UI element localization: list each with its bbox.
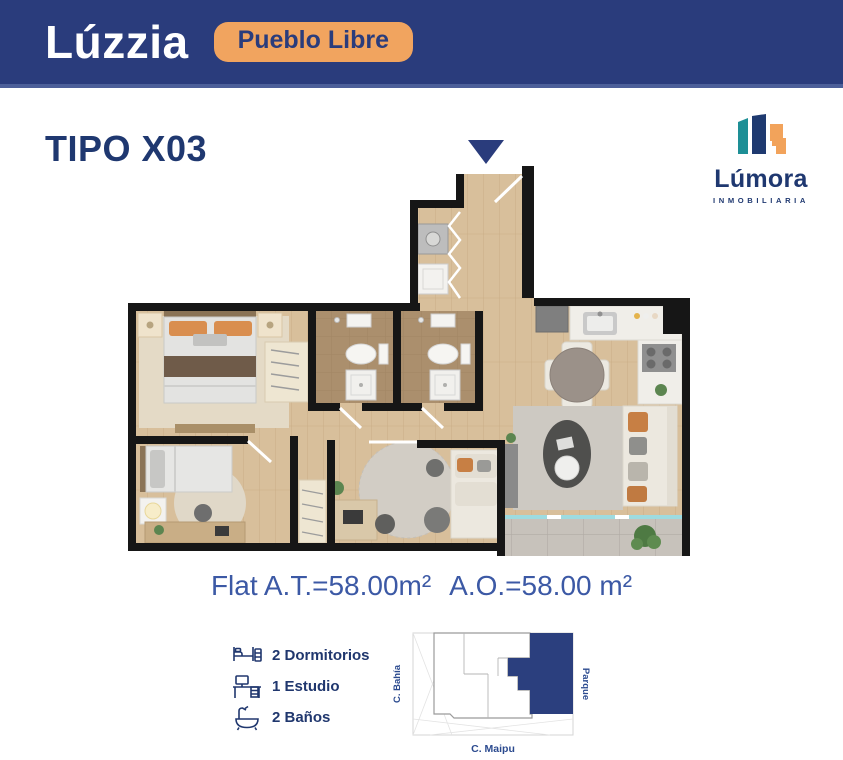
brand-title: Lúzzia: [45, 15, 189, 69]
feature-label: 2 Dormitorios: [272, 647, 370, 664]
park-label: Parque: [580, 668, 590, 700]
header-bar: Lúzzia Pueblo Libre: [0, 0, 843, 88]
glass-wall: [505, 515, 682, 519]
tv-console: [505, 444, 518, 508]
floor-plan: [115, 138, 695, 566]
desk-icon: [230, 674, 264, 700]
feature-item-bedrooms: 2 Dormitorios: [230, 640, 370, 671]
fridge: [536, 306, 568, 332]
living-room: [505, 406, 677, 510]
feature-list: 2 Dormitorios 1 Estudio 2 Baños: [230, 640, 370, 733]
entrance-arrow: [468, 140, 504, 164]
developer-subtitle: INMOBILIARIA: [702, 196, 820, 205]
buildings-icon: [724, 112, 798, 158]
official-area-text: A.O.=58.00 m²: [449, 570, 632, 602]
site-map: C. Bahía Parque C. Maipu: [390, 624, 590, 756]
feature-label: 2 Baños: [272, 709, 330, 726]
dining-table: [550, 348, 604, 402]
total-area-text: Flat A.T.=58.00m²: [211, 570, 431, 602]
feature-item-study: 1 Estudio: [230, 671, 370, 702]
cooktop: [642, 344, 676, 372]
feature-item-bathrooms: 2 Baños: [230, 702, 370, 733]
developer-logo: Lúmora INMOBILIARIA: [702, 112, 820, 205]
bed-icon: [230, 643, 264, 669]
street-label-left: C. Bahía: [392, 664, 403, 703]
master-bedroom: [138, 311, 308, 433]
developer-name: Lúmora: [702, 165, 820, 194]
bathtub-icon: [230, 705, 264, 731]
street-label-bottom: C. Maipu: [471, 743, 515, 755]
feature-label: 1 Estudio: [272, 678, 340, 695]
hall-closet: [299, 480, 326, 543]
location-badge: Pueblo Libre: [214, 22, 413, 62]
area-summary: Flat A.T.=58.00m² A.O.=58.00 m²: [0, 570, 843, 602]
